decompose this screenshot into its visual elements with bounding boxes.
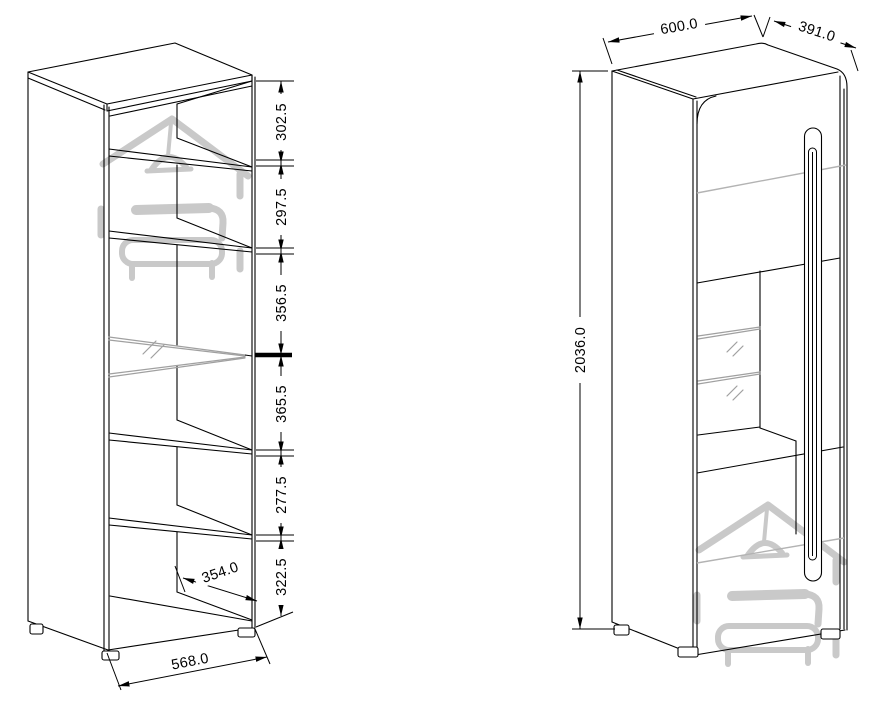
side-depth-label: 391.0	[796, 19, 837, 46]
technical-drawing-page: 302.5 297.5 356.5 365.5 277.5 322.5 354.…	[0, 0, 894, 709]
front-height-segment-label-1: 302.5	[274, 103, 290, 141]
side-width-label: 600.0	[659, 16, 699, 38]
side-view-interior	[698, 271, 796, 534]
front-width-label: 568.0	[170, 651, 210, 674]
side-view-door-handle	[805, 128, 822, 581]
front-view-depth-dimension: 354.0	[175, 555, 257, 601]
front-view-shelf-3	[109, 420, 252, 454]
front-view-feet	[30, 624, 255, 660]
front-height-segment-label-5: 277.5	[274, 476, 290, 514]
front-view-height-dimensions: 302.5 297.5 356.5 365.5 277.5 322.5	[255, 81, 294, 627]
front-height-segment-label-4: 365.5	[274, 385, 290, 423]
front-view-shelf-4	[109, 505, 252, 539]
side-view	[612, 43, 847, 657]
watermark-left	[101, 119, 248, 278]
side-view-glass-shelves	[698, 327, 760, 400]
front-view-top-panel	[28, 43, 252, 116]
side-height-label: 2036.0	[573, 327, 589, 373]
side-view-width-dimension: 600.0	[603, 13, 770, 64]
front-height-segment-label-6: 322.5	[274, 558, 290, 596]
furniture-dimension-drawing: 302.5 297.5 356.5 365.5 277.5 322.5 354.…	[0, 0, 894, 709]
front-height-segment-label-3: 356.5	[274, 284, 290, 322]
side-view-height-dimension: 2036.0	[571, 71, 615, 629]
front-view-shelf-2	[109, 218, 252, 252]
front-view-glass-shelf	[109, 337, 252, 377]
front-height-segment-label-2: 297.5	[274, 188, 290, 226]
side-view-depth-dimension: 391.0	[774, 14, 858, 71]
